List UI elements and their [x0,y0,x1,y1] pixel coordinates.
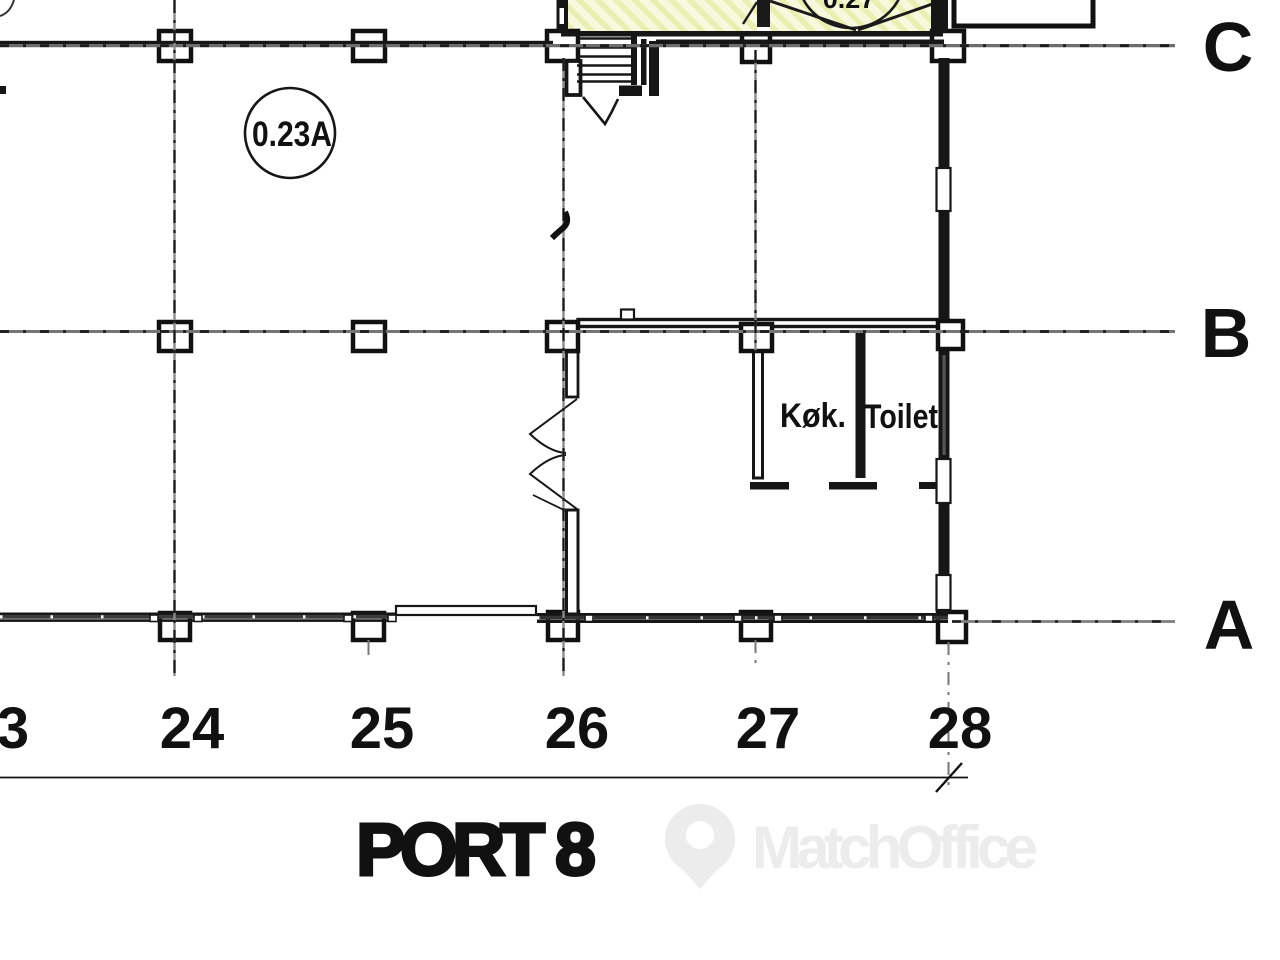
svg-text:0.27: 0.27 [823,0,876,14]
svg-text:Køk.: Køk. [780,397,846,435]
svg-text:26: 26 [545,696,610,761]
svg-text:0.23A: 0.23A [252,115,332,154]
svg-text:Toilet: Toilet [864,398,938,436]
svg-text:24: 24 [160,696,225,761]
svg-text:C: C [1203,8,1254,86]
svg-text:PORT 8: PORT 8 [356,808,596,891]
svg-text:25: 25 [350,696,415,761]
svg-text:A: A [1204,586,1255,664]
svg-text:3: 3 [0,696,29,761]
svg-text:MatchOffice: MatchOffice [752,814,1038,881]
svg-text:B: B [1201,294,1252,372]
svg-text:27: 27 [736,696,801,761]
svg-text:28: 28 [928,696,993,761]
